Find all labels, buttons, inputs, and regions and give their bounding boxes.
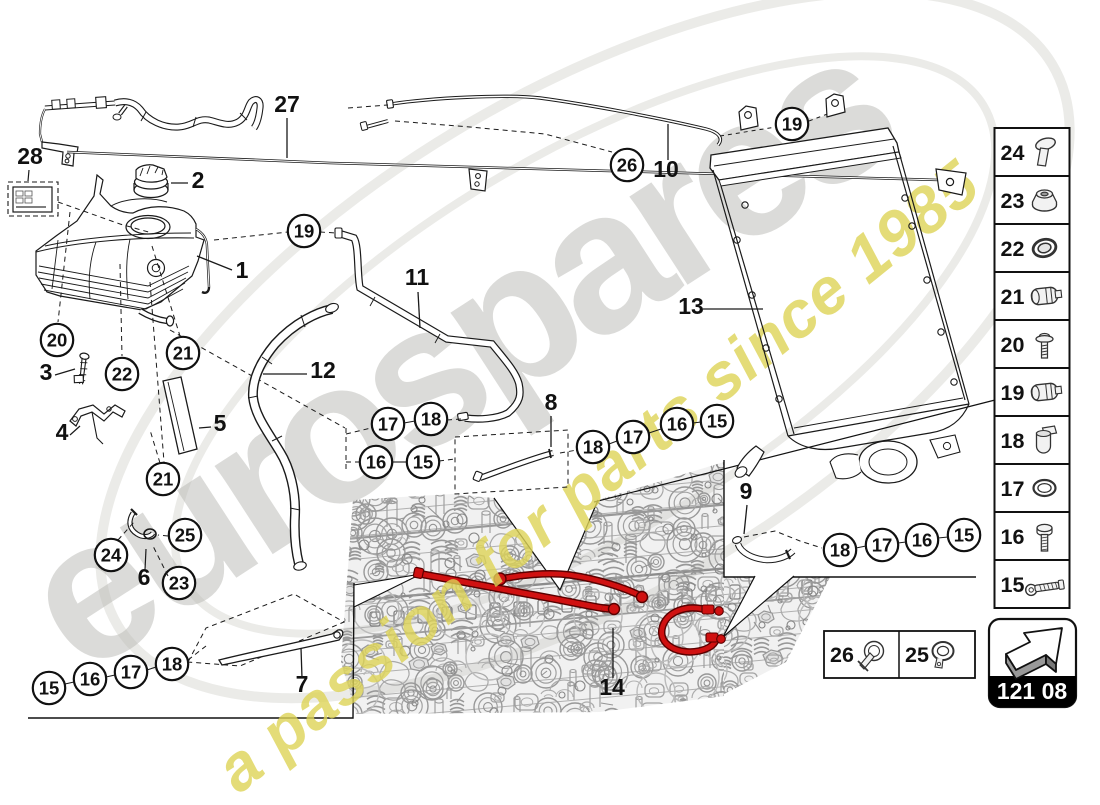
svg-text:3: 3 — [40, 359, 53, 385]
svg-text:18: 18 — [162, 653, 183, 674]
svg-text:17: 17 — [121, 661, 142, 682]
svg-text:21: 21 — [1001, 285, 1025, 309]
svg-text:18: 18 — [583, 436, 604, 457]
svg-text:19: 19 — [294, 220, 315, 241]
svg-text:17: 17 — [1001, 477, 1025, 501]
svg-text:16: 16 — [1001, 525, 1025, 549]
svg-text:16: 16 — [912, 529, 933, 550]
svg-text:22: 22 — [112, 363, 133, 384]
svg-text:15: 15 — [39, 677, 60, 698]
svg-text:23: 23 — [169, 572, 190, 593]
svg-text:26: 26 — [617, 154, 638, 175]
svg-text:19: 19 — [782, 113, 803, 134]
svg-text:6: 6 — [138, 564, 151, 590]
svg-text:25: 25 — [905, 643, 929, 667]
svg-text:15: 15 — [413, 451, 434, 472]
svg-text:12: 12 — [310, 357, 336, 383]
svg-text:2: 2 — [192, 167, 205, 193]
svg-text:16: 16 — [366, 451, 387, 472]
svg-text:18: 18 — [830, 539, 851, 560]
svg-text:24: 24 — [1001, 141, 1025, 165]
svg-text:10: 10 — [653, 156, 679, 182]
svg-text:5: 5 — [214, 410, 227, 436]
svg-text:121 08: 121 08 — [997, 678, 1068, 704]
svg-text:18: 18 — [1001, 429, 1025, 453]
svg-text:18: 18 — [421, 408, 442, 429]
svg-text:16: 16 — [667, 413, 688, 434]
svg-text:21: 21 — [153, 468, 174, 489]
svg-text:27: 27 — [274, 91, 300, 117]
svg-text:15: 15 — [1001, 573, 1025, 597]
svg-text:24: 24 — [101, 544, 122, 565]
svg-text:11: 11 — [405, 264, 430, 290]
svg-text:28: 28 — [17, 143, 43, 169]
svg-text:15: 15 — [707, 410, 728, 431]
svg-text:26: 26 — [830, 643, 854, 667]
svg-text:4: 4 — [56, 419, 69, 445]
svg-text:17: 17 — [872, 534, 893, 555]
svg-text:14: 14 — [599, 674, 625, 700]
svg-text:16: 16 — [80, 668, 101, 689]
svg-text:19: 19 — [1001, 381, 1025, 405]
svg-text:20: 20 — [1001, 333, 1025, 357]
svg-text:1: 1 — [236, 257, 249, 283]
svg-text:8: 8 — [545, 389, 558, 415]
svg-text:17: 17 — [623, 426, 644, 447]
svg-text:21: 21 — [173, 342, 194, 363]
svg-text:17: 17 — [378, 413, 399, 434]
svg-text:13: 13 — [678, 293, 704, 319]
svg-text:25: 25 — [175, 524, 196, 545]
svg-text:23: 23 — [1001, 189, 1025, 213]
svg-text:20: 20 — [47, 329, 68, 350]
svg-text:15: 15 — [954, 524, 975, 545]
svg-text:22: 22 — [1001, 237, 1025, 261]
svg-text:9: 9 — [740, 478, 753, 504]
